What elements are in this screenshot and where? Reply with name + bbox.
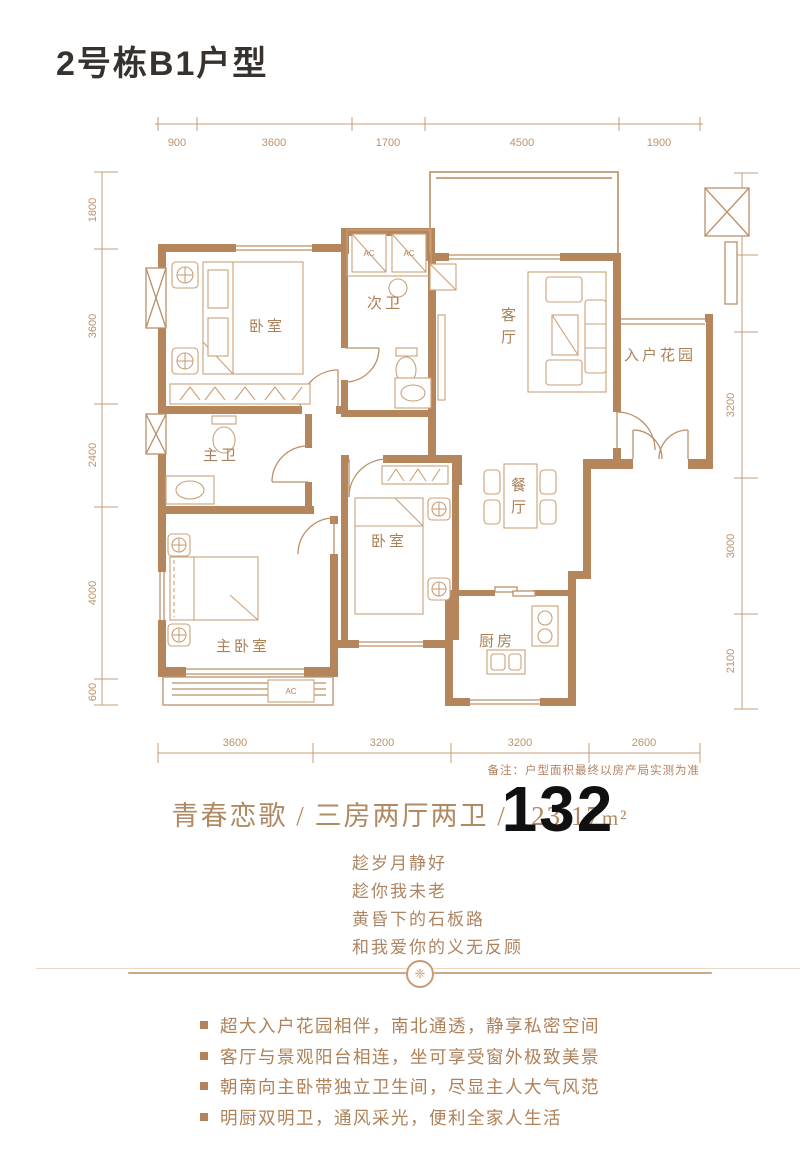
dim-label: 600	[87, 683, 99, 701]
wardrobe-icon	[170, 384, 310, 404]
poem: 趁岁月静好 趁你我未老 黄昏下的石板路 和我爱你的义无反顾	[352, 850, 523, 962]
dimension-bottom: 3600 3200 3200 2600	[158, 737, 700, 763]
nightstand-icon	[428, 578, 450, 600]
dim-label: 3600	[262, 137, 286, 149]
feature-row: 超大入户花园相伴，南北通透，静享私密空间	[200, 1012, 600, 1043]
bullet-square-icon	[200, 1113, 208, 1121]
room-label-dining-1: 餐	[511, 477, 529, 494]
room-label-living-1: 客	[501, 307, 519, 324]
page-title: 2号栋B1户型	[56, 36, 268, 85]
ac-platform: AC AC	[347, 230, 431, 276]
room-label-master-bath: 主卫	[203, 447, 239, 464]
dim-label: 4500	[510, 137, 534, 149]
feature-text: 明厨双明卫，通风采光，便利全家人生活	[220, 1108, 562, 1128]
room-label-dining-2: 厅	[511, 499, 529, 516]
feature-row: 朝南向主卧带独立卫生间，尽显主人大气风范	[200, 1073, 600, 1104]
sofa-icon	[528, 272, 606, 392]
nightstand-icon	[172, 348, 198, 374]
nightstand-icon	[428, 498, 450, 520]
poem-line: 趁岁月静好	[352, 850, 523, 878]
stove-icon	[532, 606, 558, 646]
sink-icon	[166, 476, 214, 504]
bullet-square-icon	[200, 1021, 208, 1029]
room-label-bedroom1: 卧室	[249, 318, 285, 335]
poem-line: 趁你我未老	[352, 878, 523, 906]
area-wrap: 123.17132	[516, 801, 602, 832]
room-label-kitchen: 厨房	[479, 633, 515, 650]
bullet-square-icon	[200, 1082, 208, 1090]
balcony-north	[430, 172, 618, 253]
dim-label: 4000	[87, 581, 99, 605]
nightstand-icon	[172, 262, 198, 288]
nightstand-icon	[168, 624, 190, 646]
area-overlay-number: 132	[502, 777, 615, 841]
dim-label: 3600	[87, 314, 99, 338]
floor-plan: 900 3600 1700 4500 1900 1800 3600 2400 4…	[0, 110, 800, 792]
flower-ornament-icon: ❈	[406, 960, 434, 988]
bed-icon	[355, 498, 423, 614]
vanity-icon	[395, 378, 431, 408]
room-label-entry-garden: 入户花园	[624, 347, 696, 364]
kitchen-sink-icon	[487, 650, 525, 674]
dim-label: 1900	[647, 137, 671, 149]
floorplan-page: 2号栋B1户型 900 3600 1700 4500 1900 1800	[0, 0, 800, 1157]
feature-list-inner: 超大入户花园相伴，南北通透，静享私密空间 客厅与景观阳台相连，坐可享受窗外极致美…	[200, 1012, 600, 1134]
dim-label: 3000	[725, 534, 737, 558]
dim-label: 3600	[223, 737, 247, 749]
bullet-square-icon	[200, 1052, 208, 1060]
dim-label: 1700	[376, 137, 400, 149]
bay-window-icon	[146, 414, 166, 454]
dim-label: 2100	[725, 649, 737, 673]
dimension-top: 900 3600 1700 4500 1900	[155, 117, 703, 149]
nightstand-icon	[168, 534, 190, 556]
dimension-left: 1800 3600 2400 4000 600	[87, 172, 118, 705]
feature-list: 超大入户花园相伴，南北通透，静享私密空间 客厅与景观阳台相连，坐可享受窗外极致美…	[0, 1012, 800, 1134]
room-label-master-bedroom: 主卧室	[216, 638, 270, 655]
ac-unit-label: AC	[363, 249, 374, 258]
feature-text: 超大入户花园相伴，南北通透，静享私密空间	[220, 1016, 600, 1036]
ac-unit-label: AC	[285, 687, 296, 696]
room-label-living-2: 厅	[501, 329, 519, 346]
headline-prefix: 青春恋歌 / 三房两厅两卫 /	[172, 801, 516, 831]
dim-label: 3200	[508, 737, 532, 749]
feature-text: 客厅与景观阳台相连，坐可享受窗外极致美景	[220, 1047, 600, 1067]
feature-row: 客厅与景观阳台相连，坐可享受窗外极致美景	[200, 1043, 600, 1074]
dim-label: 2600	[632, 737, 656, 749]
poem-line: 和我爱你的义无反顾	[352, 934, 523, 962]
bay-window-icon	[146, 268, 166, 328]
ac-unit-label: AC	[403, 249, 414, 258]
headline: 青春恋歌 / 三房两厅两卫 / 123.17132m²	[0, 794, 800, 833]
dim-label: 3200	[725, 393, 737, 417]
bed-icon	[170, 557, 258, 620]
divider: ❈	[128, 960, 712, 988]
dim-label: 3200	[370, 737, 394, 749]
dim-label: 900	[168, 137, 186, 149]
poem-line: 黄昏下的石板路	[352, 906, 523, 934]
dim-label: 2400	[87, 443, 99, 467]
wardrobe-icon	[382, 466, 448, 484]
room-label-second-bath: 次卫	[367, 295, 403, 312]
dim-label: 1800	[87, 198, 99, 222]
ac-unit-icon: AC	[268, 680, 314, 702]
feature-row: 明厨双明卫，通风采光，便利全家人生活	[200, 1104, 600, 1135]
room-label-bedroom2: 卧室	[371, 533, 407, 550]
feature-text: 朝南向主卧带独立卫生间，尽显主人大气风范	[220, 1077, 600, 1097]
dining-table-icon	[484, 464, 556, 528]
